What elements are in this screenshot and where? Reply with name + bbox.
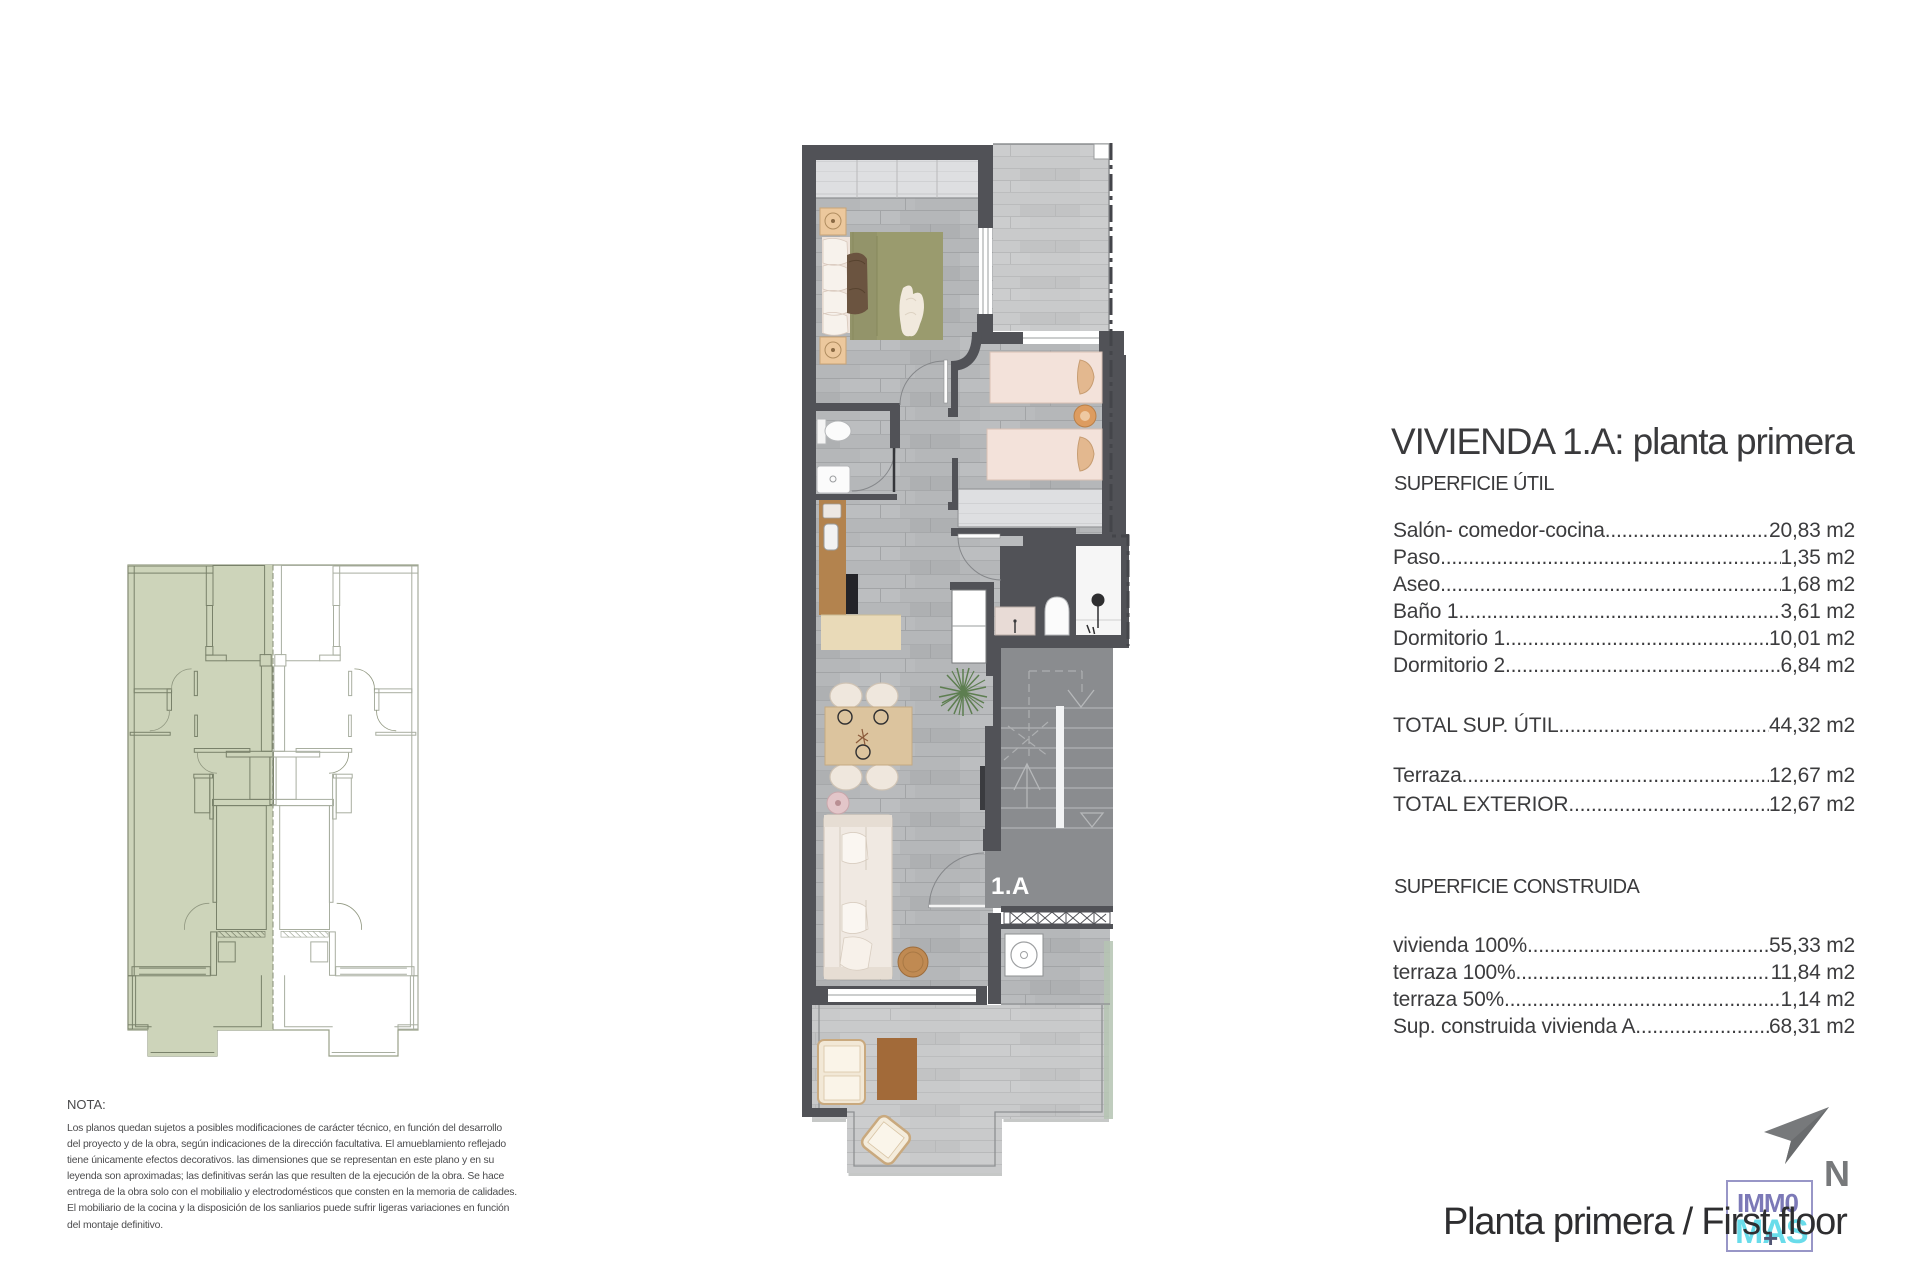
svg-text:1.A: 1.A bbox=[991, 873, 1030, 900]
svg-text:N: N bbox=[1824, 1153, 1850, 1194]
